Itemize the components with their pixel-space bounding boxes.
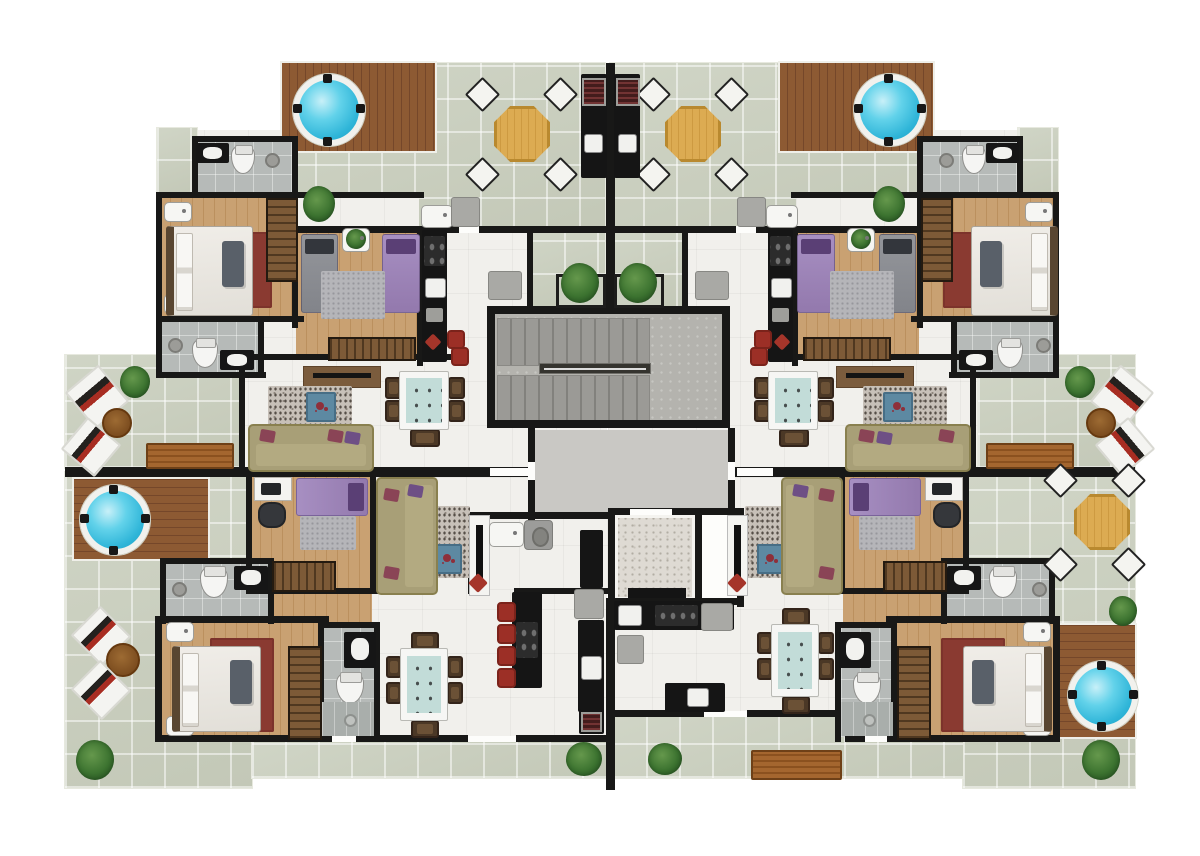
hot-tub-step — [917, 104, 926, 113]
plant — [561, 263, 599, 303]
daybed — [296, 478, 368, 516]
dining-chair — [817, 400, 834, 422]
office-desk — [254, 477, 292, 501]
throw-pillow — [327, 429, 344, 443]
kitchen-island — [512, 592, 542, 688]
floor-mat — [425, 334, 442, 351]
throw-pillow — [938, 429, 955, 443]
double-bed — [971, 226, 1058, 316]
stove — [579, 709, 604, 734]
door-opening — [737, 468, 773, 476]
plant — [346, 229, 366, 249]
throw-pillow — [792, 484, 809, 498]
plant — [873, 186, 905, 222]
outdoor-appliance — [451, 197, 480, 227]
dining-table — [768, 371, 818, 430]
shower-head — [1036, 338, 1051, 353]
door-opening — [490, 468, 528, 476]
office-chair — [258, 502, 286, 528]
office-desk — [925, 477, 963, 501]
hot-tub-step — [109, 485, 118, 494]
outdoor-sink — [766, 205, 798, 228]
throw-pillow — [876, 431, 893, 445]
hot-tub — [1068, 661, 1138, 731]
hot-tub-step — [884, 74, 893, 83]
vanity-sink — [839, 632, 871, 668]
floor-plan — [0, 0, 1200, 856]
garden-bench — [751, 750, 842, 780]
office-chair — [933, 502, 961, 528]
kitchen-counter — [614, 601, 734, 630]
plant — [1082, 740, 1120, 780]
wall — [682, 226, 688, 310]
counter-appliance — [426, 308, 443, 322]
wardrobe — [897, 646, 931, 740]
refrigerator — [574, 589, 604, 619]
vanity-sink — [986, 143, 1019, 163]
kids-rug — [830, 271, 894, 319]
dining-chair — [448, 400, 465, 422]
vanity-sink — [344, 632, 376, 668]
sofa-l-shaped — [781, 477, 843, 595]
planter-box — [556, 274, 606, 308]
kitchen-sink — [771, 278, 792, 298]
outdoor-appliance — [737, 197, 766, 227]
dining-chair — [818, 632, 834, 654]
dining-chair — [411, 720, 439, 738]
hot-tub-step — [109, 546, 118, 555]
wall — [239, 354, 245, 470]
wall — [728, 428, 735, 464]
bar-stool — [497, 602, 516, 622]
dining-table — [399, 371, 449, 430]
wall — [487, 306, 495, 428]
shower-head — [168, 338, 183, 353]
plant — [303, 186, 335, 222]
outdoor-dining-table — [494, 106, 550, 162]
laundry-sink — [489, 522, 524, 547]
wardrobe — [921, 198, 953, 282]
plant — [1109, 596, 1137, 626]
plant — [1065, 366, 1095, 398]
hot-tub-step — [1097, 722, 1106, 731]
sofa — [845, 424, 971, 472]
coffee-table — [306, 392, 336, 422]
daybed — [849, 478, 921, 516]
wardrobe — [266, 198, 298, 282]
kitchen-island — [665, 683, 725, 712]
hot-tub-step — [293, 104, 302, 113]
plant-stand — [847, 228, 875, 252]
kitchen-sink — [425, 278, 446, 298]
kitchen-counter — [422, 230, 447, 362]
wall — [160, 558, 166, 624]
sofa — [248, 424, 374, 472]
shower-head — [939, 153, 954, 168]
wall — [516, 735, 608, 742]
wall — [722, 306, 730, 428]
wall — [160, 558, 274, 564]
bbq-sink — [618, 134, 637, 153]
coffee-table — [434, 544, 462, 574]
wall — [479, 226, 606, 233]
lower-left-terrace-strip — [252, 742, 608, 778]
dining-chair — [818, 658, 834, 680]
refrigerator — [488, 271, 522, 300]
shower-drain — [863, 714, 876, 727]
dining-table — [400, 648, 448, 721]
dining-chair — [817, 377, 834, 399]
throw-pillow — [407, 484, 424, 498]
throw-pillow — [818, 566, 835, 580]
nightstand — [164, 202, 192, 222]
cooktop — [424, 236, 445, 266]
wardrobe — [803, 337, 891, 361]
office-rug — [859, 516, 915, 550]
door-opening — [736, 226, 756, 233]
hot-tub-step — [323, 137, 332, 146]
dining-chair — [782, 696, 810, 714]
counter-appliance — [772, 308, 789, 322]
wall — [951, 316, 957, 378]
wall — [528, 428, 535, 464]
cooktop — [516, 622, 538, 658]
outdoor-sink — [421, 205, 453, 228]
wall — [845, 735, 865, 742]
elevator-doors — [630, 509, 672, 515]
plant — [120, 366, 150, 398]
bar-stool — [497, 646, 516, 666]
wall — [487, 306, 730, 314]
outdoor-dining-table — [1074, 494, 1130, 550]
pantry-cabinet — [580, 530, 603, 588]
dining-table-top — [406, 378, 442, 423]
plant — [619, 263, 657, 303]
side-table — [102, 408, 132, 438]
dining-chair — [447, 656, 463, 678]
shower-drain — [344, 714, 357, 727]
wall — [318, 622, 380, 628]
shower-head — [1032, 582, 1047, 597]
elevator-threshold — [628, 588, 686, 598]
nightstand — [166, 622, 194, 642]
office-rug — [300, 516, 356, 550]
outdoor-dining-table — [665, 106, 721, 162]
shower-area — [841, 702, 893, 736]
cooktop — [770, 236, 791, 266]
wardrobe — [883, 561, 947, 592]
wall — [695, 508, 702, 607]
vanity-sink — [947, 566, 981, 590]
hot-tub-step — [1097, 661, 1106, 670]
vanity-sink — [234, 566, 268, 590]
bbq-grill — [616, 78, 640, 106]
wall — [258, 316, 264, 378]
tv-cabinet — [836, 366, 914, 388]
bar-stool — [497, 668, 516, 688]
dining-table-top — [778, 632, 812, 689]
hot-tub-step — [884, 137, 893, 146]
dining-table-top — [407, 656, 441, 713]
wall — [608, 508, 744, 515]
wall — [949, 372, 1059, 378]
stove-grate — [581, 712, 602, 732]
bbq-counter — [614, 74, 640, 178]
wall — [156, 192, 162, 378]
plant — [566, 742, 602, 776]
stair-flight-lower — [497, 375, 650, 422]
wardrobe — [272, 561, 336, 592]
service-cart — [617, 635, 644, 664]
wall — [911, 316, 1059, 322]
wall — [608, 508, 615, 607]
door-opening — [332, 736, 356, 742]
cooktop — [655, 605, 698, 626]
sofa-l-shaped — [376, 477, 438, 595]
vanity-sink — [220, 350, 254, 370]
nightstand — [1023, 622, 1051, 642]
door-opening — [468, 736, 516, 742]
planter-box — [614, 274, 664, 308]
wall — [835, 622, 897, 628]
tv-cabinet — [303, 366, 381, 388]
lobby-floor — [535, 430, 728, 516]
door-opening — [459, 226, 479, 233]
door-opening — [865, 736, 887, 742]
double-bed — [172, 646, 261, 732]
hot-tub-step — [141, 514, 150, 523]
hot-tub — [80, 485, 150, 555]
side-table — [1086, 408, 1116, 438]
dining-table-top — [775, 378, 811, 423]
dining-table — [771, 624, 819, 697]
garden-bench — [146, 443, 234, 469]
hot-tub-step — [80, 514, 89, 523]
floor-mat — [774, 334, 791, 351]
double-bed — [166, 226, 253, 316]
island-sink — [687, 688, 709, 707]
bbq-counter — [581, 74, 607, 178]
counter-appliance — [701, 603, 733, 631]
wall — [192, 136, 298, 142]
bar-stool — [497, 624, 516, 644]
hot-tub-step — [323, 74, 332, 83]
kitchen-sink — [618, 605, 642, 626]
dining-chair — [447, 682, 463, 704]
wall — [527, 226, 533, 310]
wall — [1053, 616, 1060, 742]
wall — [609, 226, 736, 233]
throw-pillow — [858, 429, 875, 443]
vanity-sink — [196, 143, 229, 163]
throw-pillow — [383, 566, 400, 580]
shower-head — [172, 582, 187, 597]
shower-area — [322, 702, 374, 736]
door-opening — [528, 462, 535, 480]
nightstand — [1025, 202, 1053, 222]
hot-tub-step — [1129, 690, 1138, 699]
hot-tub-step — [854, 104, 863, 113]
wardrobe — [288, 646, 322, 740]
wall — [155, 616, 162, 742]
plant — [76, 740, 114, 780]
door-opening — [728, 462, 735, 480]
stair-rail — [540, 364, 650, 373]
hot-tub-step — [1068, 690, 1077, 699]
plant-stand — [342, 228, 370, 252]
dining-chair — [448, 377, 465, 399]
wall — [156, 316, 304, 322]
wardrobe — [328, 337, 416, 361]
washing-machine — [524, 520, 553, 550]
hot-tub-step — [356, 104, 365, 113]
hot-tub — [293, 74, 365, 146]
wall — [487, 420, 730, 428]
shower-head — [265, 153, 280, 168]
kitchen-sink — [581, 656, 602, 680]
bar-stool — [750, 347, 768, 366]
hot-tub — [854, 74, 926, 146]
wall — [941, 558, 1055, 564]
bbq-grill — [582, 78, 606, 106]
kids-rug — [321, 271, 385, 319]
throw-pillow — [383, 488, 400, 502]
throw-pillow — [818, 488, 835, 502]
stair-flight-upper — [497, 318, 650, 366]
refrigerator — [695, 271, 729, 300]
throw-pillow — [259, 429, 276, 443]
throw-pillow — [344, 431, 361, 445]
wall — [156, 372, 266, 378]
dining-chair — [410, 429, 440, 447]
dining-chair — [779, 429, 809, 447]
coffee-table — [883, 392, 913, 422]
wall — [917, 136, 1023, 142]
service-balcony — [157, 128, 197, 194]
plant — [851, 229, 871, 249]
double-bed — [963, 646, 1052, 732]
service-balcony — [1018, 128, 1058, 194]
bar-stool — [451, 347, 469, 366]
bbq-sink — [584, 134, 603, 153]
single-bed-purple — [382, 234, 420, 313]
plant — [648, 743, 682, 775]
kitchen-counter — [578, 620, 604, 712]
vanity-sink — [959, 350, 993, 370]
